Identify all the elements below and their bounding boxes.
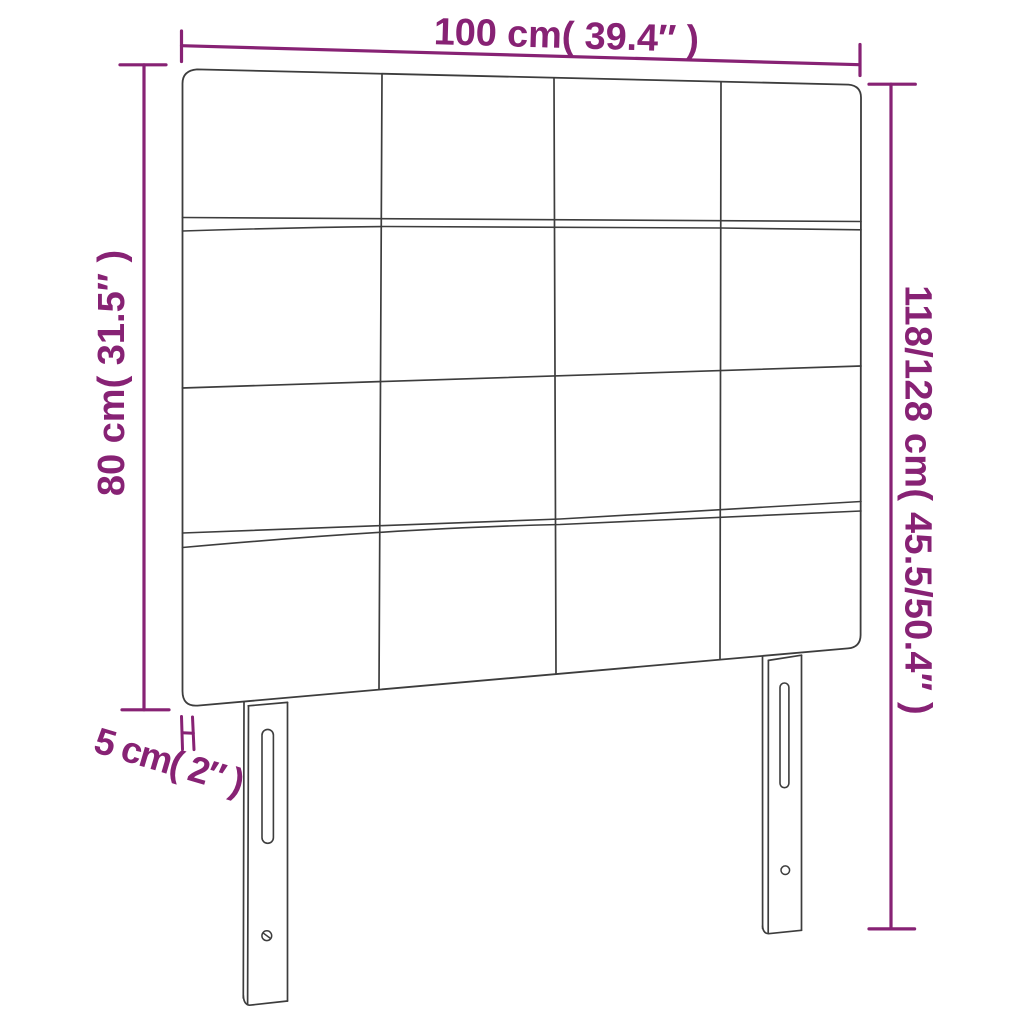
svg-text:5 cm( 2″ ): 5 cm( 2″ ) (90, 720, 248, 803)
svg-text:80 cm( 31.5″ ): 80 cm( 31.5″ ) (91, 250, 133, 496)
svg-text:100 cm( 39.4″ ): 100 cm( 39.4″ ) (433, 11, 699, 61)
svg-text:118/128 cm( 45.5/50.4″ ): 118/128 cm( 45.5/50.4″ ) (897, 285, 939, 715)
